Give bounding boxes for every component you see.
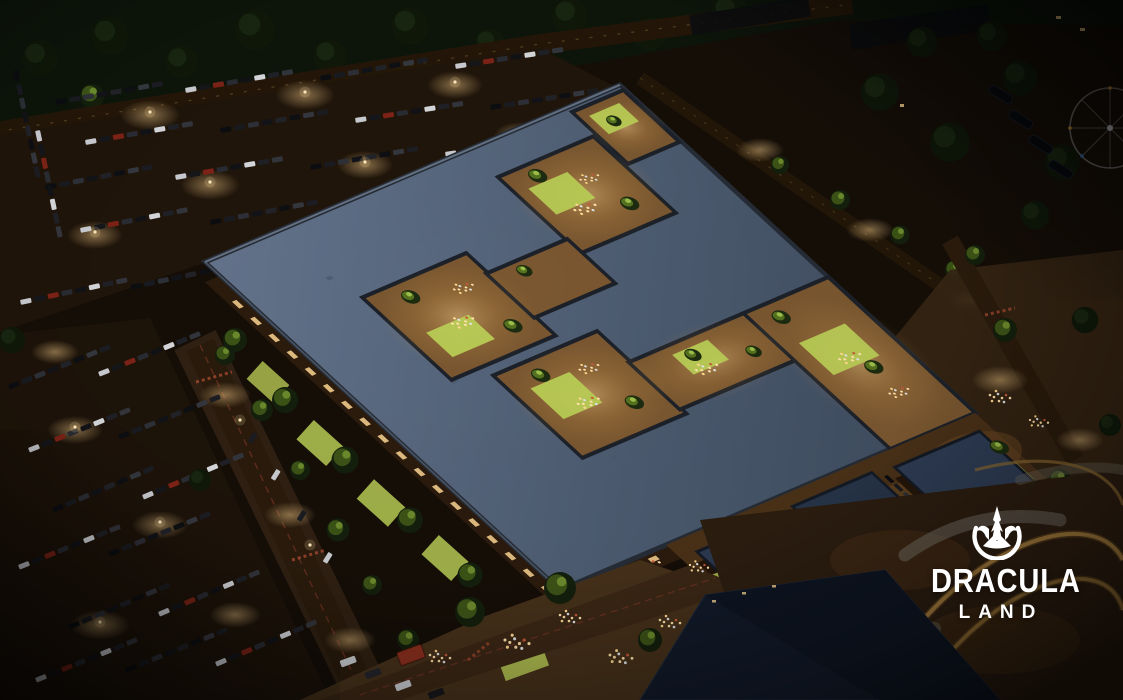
logo-title: DRACULA — [931, 564, 1063, 597]
vignette-top-right — [700, 0, 1123, 300]
castle-emblem-icon — [966, 502, 1028, 560]
dracula-land-logo: DRACULA LAND — [922, 502, 1072, 622]
logo-subtitle: LAND — [922, 603, 1072, 622]
vignette-bottom-left — [0, 430, 340, 700]
aerial-night-render: DRACULA LAND — [0, 0, 1123, 700]
